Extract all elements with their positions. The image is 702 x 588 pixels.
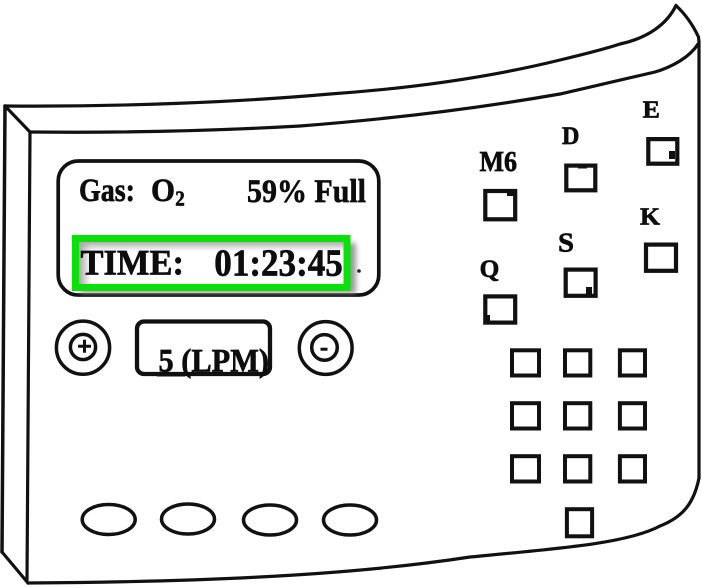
svg-text:D: D <box>562 123 579 150</box>
svg-text:01:23:45: 01:23:45 <box>214 243 342 285</box>
svg-text:Gas:: Gas: <box>79 173 135 209</box>
svg-text:S: S <box>558 227 574 257</box>
svg-text:2: 2 <box>175 187 185 211</box>
svg-text:E: E <box>643 97 660 123</box>
svg-text:M6: M6 <box>480 147 518 178</box>
svg-text:TIME:: TIME: <box>81 243 185 283</box>
svg-text:O: O <box>151 173 175 209</box>
svg-text:Q: Q <box>480 256 500 283</box>
svg-text:59% Full: 59% Full <box>247 174 366 210</box>
svg-text:K: K <box>640 205 660 231</box>
